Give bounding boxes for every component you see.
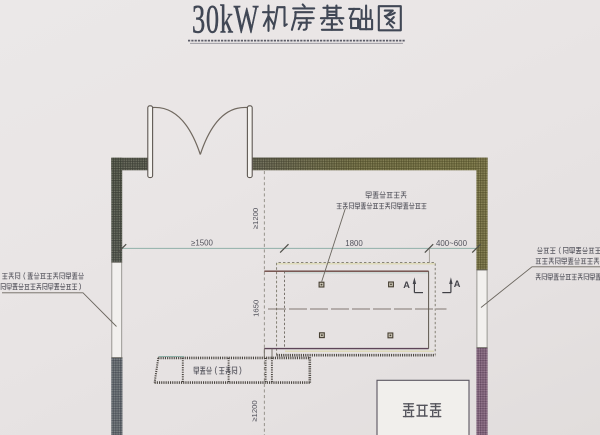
svg-text:A: A <box>403 280 410 290</box>
svg-text:1650: 1650 <box>251 300 260 317</box>
svg-text:30kW: 30kW <box>192 0 259 42</box>
svg-text:1800: 1800 <box>345 239 363 248</box>
svg-text:≥1500: ≥1500 <box>191 238 213 247</box>
svg-text:≥1200: ≥1200 <box>250 400 259 421</box>
svg-text:≥1200: ≥1200 <box>251 208 260 229</box>
svg-text:400~600: 400~600 <box>436 239 468 248</box>
svg-text:A: A <box>454 279 461 289</box>
